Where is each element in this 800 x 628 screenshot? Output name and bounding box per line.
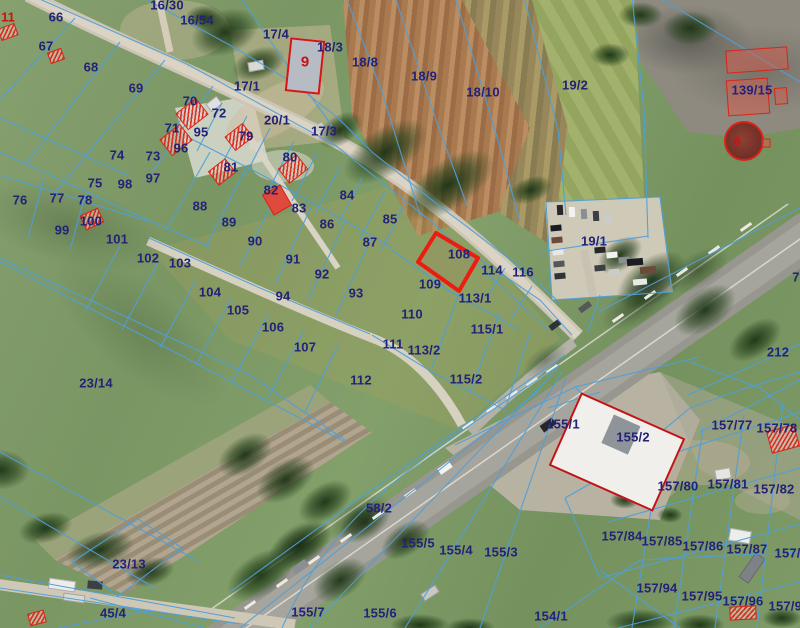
parcel-label-155-5[interactable]: 155/5 <box>401 536 435 551</box>
parcel-label-157-88[interactable]: 157/88 <box>775 546 800 561</box>
parcel-label-116[interactable]: 116 <box>512 265 534 280</box>
parcel-label-90[interactable]: 90 <box>248 234 263 249</box>
parcel-label-68[interactable]: 68 <box>84 60 99 75</box>
parcel-label-19-1[interactable]: 19/1 <box>581 234 607 249</box>
parcel-label-103[interactable]: 103 <box>169 256 191 271</box>
parcel-label-77[interactable]: 77 <box>50 191 65 206</box>
parcel-label-69[interactable]: 69 <box>129 81 144 96</box>
parcel-label-79[interactable]: 79 <box>239 129 254 144</box>
parcel-label-84[interactable]: 84 <box>340 188 355 203</box>
parcel-label-18-10[interactable]: 18/10 <box>466 85 500 100</box>
parcel-label-88[interactable]: 88 <box>193 199 208 214</box>
parcel-label-45-4[interactable]: 45/4 <box>100 606 126 621</box>
parcel-label-96[interactable]: 96 <box>174 141 189 156</box>
parcel-label-110[interactable]: 110 <box>401 307 423 322</box>
parcel-label-157-96[interactable]: 157/96 <box>723 594 764 609</box>
parcel-label-75[interactable]: 75 <box>88 176 103 191</box>
parcel-label-23-13[interactable]: 23/13 <box>112 557 146 572</box>
parcel-label-154-1[interactable]: 154/1 <box>534 609 568 624</box>
parcel-label-105[interactable]: 105 <box>227 303 249 318</box>
parcel-label-82[interactable]: 82 <box>264 183 279 198</box>
parcel-label-157-97[interactable]: 157/97 <box>769 599 800 614</box>
parcel-label-112[interactable]: 112 <box>350 373 372 388</box>
parcel-label-18-8[interactable]: 18/8 <box>352 55 378 70</box>
parcel-label-100[interactable]: 100 <box>80 214 102 229</box>
parcel-label-115-2[interactable]: 115/2 <box>450 372 483 387</box>
parcel-label-16-54[interactable]: 16/54 <box>180 13 214 28</box>
parcel-label-157-86[interactable]: 157/86 <box>683 539 724 554</box>
parcel-label-73[interactable]: 73 <box>146 149 161 164</box>
parcel-label-113-1[interactable]: 113/1 <box>459 291 492 306</box>
parcel-label-155-4[interactable]: 155/4 <box>439 543 473 558</box>
parcel-label-157-78[interactable]: 157/78 <box>757 421 798 436</box>
parcel-label-81[interactable]: 81 <box>224 160 239 175</box>
parcel-label-71[interactable]: 71 <box>165 121 180 136</box>
parcel-label-80[interactable]: 80 <box>283 150 298 165</box>
parcel-label-102[interactable]: 102 <box>137 251 159 266</box>
parcel-label-111[interactable]: 111 <box>383 337 404 352</box>
parcel-label-155-2[interactable]: 155/2 <box>616 430 650 445</box>
parcel-label-16-30[interactable]: 16/30 <box>150 0 184 13</box>
parcel-label-113-2[interactable]: 113/2 <box>408 343 441 358</box>
parcel-label-97[interactable]: 97 <box>146 171 161 186</box>
red-label-11: 11 <box>1 10 15 25</box>
aerial-map-canvas[interactable]: 16/3016/546667686917/418/318/818/918/101… <box>0 0 800 628</box>
parcel-label-155-1[interactable]: 155/1 <box>546 417 580 432</box>
parcel-label-157-95[interactable]: 157/95 <box>682 589 723 604</box>
parcel-label-66[interactable]: 66 <box>49 10 64 25</box>
red-label-8: 8 <box>734 136 740 148</box>
parcel-label-89[interactable]: 89 <box>222 215 237 230</box>
parcel-label-70[interactable]: 70 <box>183 94 198 109</box>
parcel-label-85[interactable]: 85 <box>383 212 398 227</box>
parcel-label-87[interactable]: 87 <box>363 235 378 250</box>
parcel-label-20-1[interactable]: 20/1 <box>264 113 290 128</box>
parcel-label-212[interactable]: 212 <box>767 345 789 360</box>
parcel-label-107[interactable]: 107 <box>294 340 316 355</box>
parcel-label-74[interactable]: 74 <box>110 148 125 163</box>
labels-layer: 16/3016/546667686917/418/318/818/918/101… <box>0 0 800 628</box>
parcel-label-18-9[interactable]: 18/9 <box>411 69 437 84</box>
parcel-label-7[interactable]: 7 <box>792 270 799 285</box>
parcel-label-155-6[interactable]: 155/6 <box>363 606 397 621</box>
parcel-label-23-14[interactable]: 23/14 <box>79 376 113 391</box>
parcel-label-157-82[interactable]: 157/82 <box>754 482 795 497</box>
parcel-label-98[interactable]: 98 <box>118 177 133 192</box>
parcel-label-58-2[interactable]: 58/2 <box>366 501 392 516</box>
parcel-label-76[interactable]: 76 <box>13 193 28 208</box>
parcel-label-114[interactable]: 114 <box>481 263 503 278</box>
parcel-label-157-81[interactable]: 157/81 <box>708 477 749 492</box>
parcel-label-155-7[interactable]: 155/7 <box>291 605 325 620</box>
parcel-label-86[interactable]: 86 <box>320 217 335 232</box>
parcel-label-95[interactable]: 95 <box>194 125 209 140</box>
parcel-label-92[interactable]: 92 <box>315 267 330 282</box>
parcel-label-17-3[interactable]: 17/3 <box>311 124 337 139</box>
parcel-label-157-94[interactable]: 157/94 <box>637 581 678 596</box>
parcel-label-106[interactable]: 106 <box>262 320 284 335</box>
parcel-label-78[interactable]: 78 <box>78 193 93 208</box>
parcel-label-157-77[interactable]: 157/77 <box>712 418 753 433</box>
parcel-label-94[interactable]: 94 <box>276 289 291 304</box>
parcel-label-157-87[interactable]: 157/87 <box>727 542 768 557</box>
parcel-label-104[interactable]: 104 <box>199 285 221 300</box>
parcel-label-101[interactable]: 101 <box>106 232 128 247</box>
parcel-label-17-4[interactable]: 17/4 <box>263 27 289 42</box>
parcel-label-108[interactable]: 108 <box>448 247 470 262</box>
parcel-label-91[interactable]: 91 <box>286 252 301 267</box>
parcel-label-19-2[interactable]: 19/2 <box>562 78 588 93</box>
parcel-label-155-3[interactable]: 155/3 <box>484 545 518 560</box>
parcel-label-115-1[interactable]: 115/1 <box>471 322 504 337</box>
parcel-label-72[interactable]: 72 <box>212 106 227 121</box>
parcel-label-67[interactable]: 67 <box>39 39 54 54</box>
parcel-label-18-3[interactable]: 18/3 <box>317 40 343 55</box>
parcel-label-157-85[interactable]: 157/85 <box>642 534 683 549</box>
parcel-label-157-80[interactable]: 157/80 <box>658 479 699 494</box>
parcel-label-157-84[interactable]: 157/84 <box>602 529 643 544</box>
parcel-label-99[interactable]: 99 <box>55 223 70 238</box>
parcel-label-17-1[interactable]: 17/1 <box>234 79 260 94</box>
parcel-label-93[interactable]: 93 <box>349 286 364 301</box>
parcel-label-83[interactable]: 83 <box>292 201 307 216</box>
parcel-label-139-15[interactable]: 139/15 <box>732 83 773 98</box>
parcel-label-109[interactable]: 109 <box>419 277 441 292</box>
red-label-9: 9 <box>301 54 309 71</box>
